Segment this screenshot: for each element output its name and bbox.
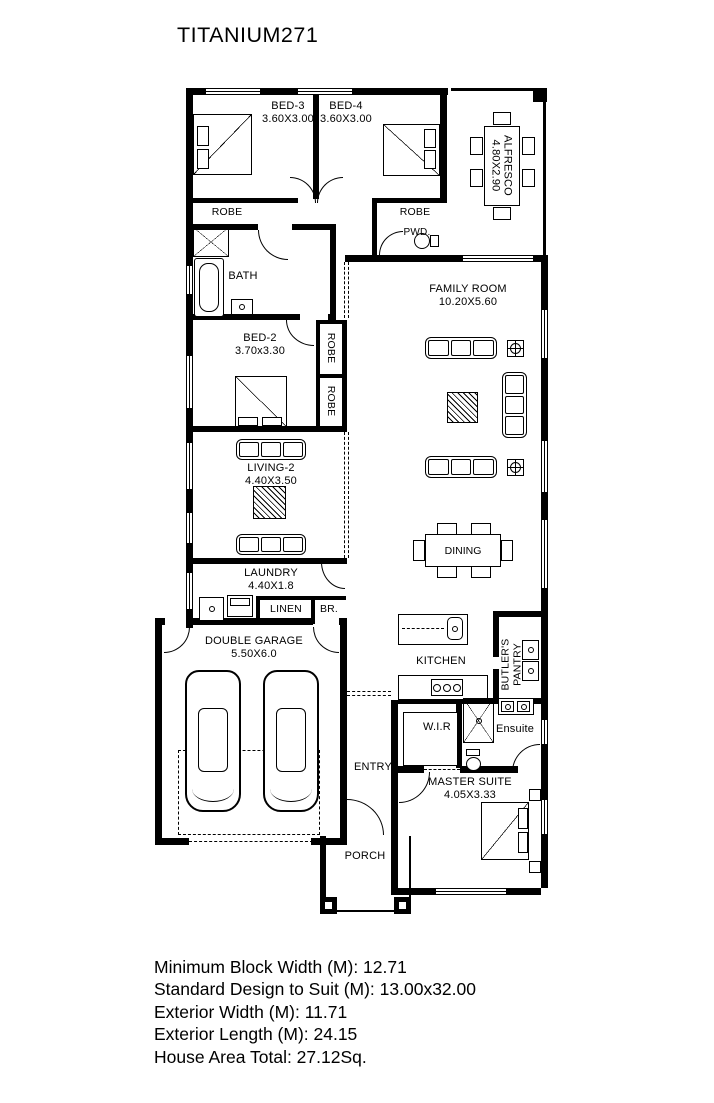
spec-block: Minimum Block Width (M): 12.71 Standard …: [154, 956, 476, 1068]
wall: [493, 611, 541, 617]
open-boundary-dashed: [347, 691, 391, 696]
washer-icon: [199, 597, 224, 621]
sofa-seat: [505, 416, 524, 435]
pantry-sink-icon: [522, 640, 539, 660]
door-arc-icon: [379, 231, 403, 255]
side-table-icon: [507, 459, 524, 476]
door-arc-icon: [317, 177, 343, 203]
window-icon: [206, 88, 260, 95]
porch-post: [320, 897, 337, 914]
sofa-icon: [236, 439, 306, 460]
wall: [316, 320, 346, 324]
room-label-bath: BATH: [228, 270, 257, 283]
wall: [330, 224, 336, 320]
wall: [533, 255, 548, 262]
plan-title: TITANIUM271: [177, 23, 318, 48]
window-icon: [463, 255, 533, 262]
door-arc-icon: [258, 230, 288, 260]
sofa-seat: [261, 537, 281, 552]
sink-icon: [447, 617, 463, 640]
wall: [186, 198, 298, 203]
room-label-wir: W.I.R: [423, 721, 451, 734]
fixture-detail: [430, 235, 439, 247]
wall: [320, 836, 326, 900]
room-label-bed2: BED-23.70x3.30: [235, 332, 285, 358]
room-label-alfresco: ALFRESCO4.80X2.90: [489, 127, 516, 205]
sofa-seat: [239, 537, 259, 552]
bedside-table-icon: [529, 861, 541, 873]
wall: [316, 374, 346, 378]
room-label-ensuite: Ensuite: [496, 723, 534, 736]
dashed-line: [424, 769, 460, 770]
room-label-robe3: ROBE: [212, 206, 243, 219]
room-label-master: MASTER SUITE4.05X3.33: [428, 776, 512, 802]
sofa-seat: [451, 340, 472, 356]
room-label-dining: DINING: [445, 545, 482, 557]
room-label-entry: ENTRY: [354, 761, 392, 774]
window-icon: [541, 520, 548, 588]
sofa-seat: [261, 442, 281, 457]
wall: [372, 203, 377, 256]
pillow-icon: [197, 149, 209, 169]
window-icon: [541, 441, 548, 492]
wall: [440, 88, 447, 200]
fixture-detail: [230, 598, 250, 606]
room-label-family: FAMILY ROOM10.20X5.60: [429, 283, 507, 309]
room-label-br: BR.: [320, 603, 338, 616]
window-icon: [298, 88, 352, 95]
pillow-icon: [197, 126, 209, 146]
wall: [345, 255, 463, 262]
wall: [391, 793, 398, 895]
window-icon: [186, 266, 193, 294]
spec-line: House Area Total: 27.12Sq.: [154, 1046, 476, 1068]
sofa-icon: [425, 456, 497, 478]
sofa-seat: [239, 442, 259, 457]
window-icon: [436, 888, 506, 895]
window-icon: [541, 720, 548, 744]
door-arc-icon: [321, 562, 345, 589]
pantry-sink-icon: [522, 661, 539, 681]
window-icon: [186, 356, 193, 408]
cooktop-icon: [431, 679, 463, 696]
fixture-detail: [466, 757, 481, 771]
room-label-butlers-pantry: BUTLER'SPANTRY: [498, 633, 525, 697]
wall: [155, 838, 189, 845]
side-table-icon: [507, 340, 524, 357]
sofa-icon: [425, 337, 497, 359]
linen-cupboard-icon: [193, 227, 229, 257]
pillow-icon: [424, 150, 436, 169]
wall: [543, 91, 546, 258]
wall: [340, 625, 347, 845]
wall: [451, 88, 534, 91]
porch-post: [394, 897, 411, 914]
toilet-icon: [466, 749, 480, 756]
bedside-table-icon: [529, 789, 541, 801]
car-icon: [185, 670, 241, 812]
room-label-porch: PORCH: [345, 850, 386, 863]
pillow-icon: [262, 417, 282, 426]
room-label-robe4: ROBE: [400, 206, 431, 219]
window-icon: [541, 310, 548, 358]
sofa-seat: [283, 537, 303, 552]
room-label-bed3: BED-33.60X3.00: [262, 100, 314, 126]
chair-icon: [437, 566, 457, 578]
sofa-seat: [505, 396, 524, 415]
room-label-kitchen: KITCHEN: [416, 655, 466, 668]
door-arc-icon: [286, 320, 314, 346]
pillow-icon: [518, 808, 528, 829]
room-label-living2: LIVING-24.40X3.50: [245, 462, 297, 488]
dashed-line: [402, 628, 444, 629]
room-label-linen: LINEN: [270, 603, 302, 616]
sofa-seat: [428, 340, 449, 356]
open-boundary-dashed: [344, 432, 349, 558]
rug-icon: [253, 486, 286, 519]
chair-icon: [522, 169, 535, 187]
spec-line: Exterior Width (M): 11.71: [154, 1001, 476, 1023]
open-boundary-dashed: [344, 262, 349, 318]
window-icon: [186, 513, 193, 543]
chair-icon: [501, 540, 513, 561]
window-icon: [541, 800, 548, 834]
spec-line: Minimum Block Width (M): 12.71: [154, 956, 476, 978]
chair-icon: [470, 169, 483, 187]
door-arc-icon: [347, 799, 384, 835]
sofa-seat: [473, 340, 494, 356]
sofa-icon: [502, 372, 527, 438]
room-label-robe-b: ROBE: [324, 381, 338, 421]
fixture-detail: [199, 263, 219, 312]
chair-icon: [493, 112, 511, 125]
door-arc-icon: [399, 772, 430, 803]
car-icon: [263, 670, 319, 812]
window-icon: [186, 443, 193, 489]
chair-icon: [522, 137, 535, 155]
room-label-robe-a: ROBE: [324, 328, 338, 368]
sofa-seat: [473, 459, 494, 475]
rug-icon: [447, 392, 478, 423]
sofa-seat: [451, 459, 472, 475]
wall: [391, 700, 398, 795]
chair-icon: [470, 137, 483, 155]
sofa-seat: [428, 459, 449, 475]
wall: [155, 618, 162, 845]
room-label-pwd: PWD.: [404, 226, 431, 239]
wall: [311, 838, 347, 845]
shower-icon: [463, 698, 494, 743]
spec-line: Exterior Length (M): 24.15: [154, 1023, 476, 1045]
pillow-icon: [424, 129, 436, 148]
room-label-bed4: BED-43.60X3.00: [320, 100, 372, 126]
chair-icon: [413, 540, 425, 561]
dashed-line: [189, 841, 313, 842]
window-icon: [186, 573, 193, 609]
chair-icon: [493, 207, 511, 220]
sofa-seat: [283, 442, 303, 457]
pillow-icon: [518, 832, 528, 853]
wall: [541, 634, 548, 888]
sink-icon: [231, 299, 253, 315]
sofa-icon: [236, 534, 306, 555]
room-label-laundry: LAUNDRY4.40X1.8: [244, 567, 298, 593]
wall: [372, 198, 447, 203]
dining-table-icon: DINING: [425, 534, 501, 567]
spec-line: Standard Design to Suit (M): 13.00x32.00: [154, 978, 476, 1000]
door-arc-icon: [164, 627, 190, 653]
room-label-garage: DOUBLE GARAGE5.50X6.0: [205, 635, 303, 661]
fixture-detail: [517, 701, 530, 712]
wall: [256, 596, 346, 600]
fixture-detail: [501, 701, 514, 712]
door-arc-icon: [512, 744, 540, 772]
sofa-seat: [505, 375, 524, 394]
chair-icon: [471, 566, 491, 578]
door-arc-icon: [313, 627, 339, 653]
pillow-icon: [238, 417, 258, 426]
wall: [339, 618, 347, 625]
